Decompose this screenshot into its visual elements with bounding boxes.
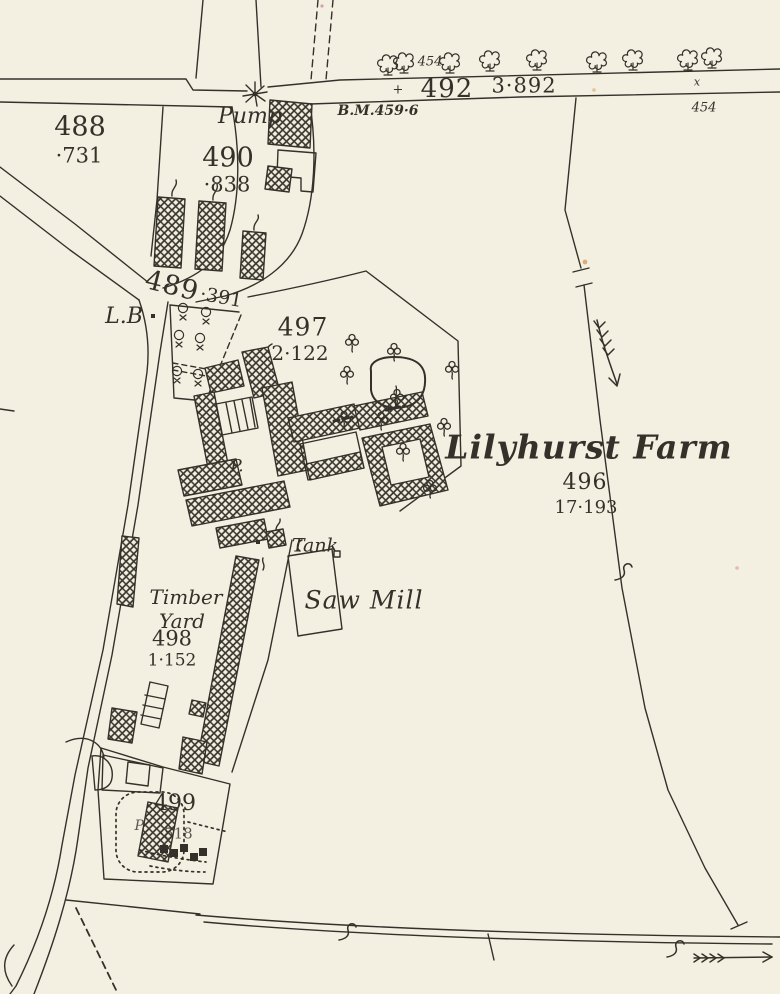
fruit-tree-icon <box>193 369 202 386</box>
tree-icon <box>587 52 607 72</box>
fruit-tree-icon <box>195 333 204 350</box>
parcel-498-area: 1·152 <box>148 653 197 670</box>
tree-icon <box>702 48 722 68</box>
guide-post-icon <box>243 82 267 106</box>
map-linework <box>0 0 780 994</box>
parcel-490-number: 490 <box>202 145 254 172</box>
letter-box-label: L.B <box>105 306 143 328</box>
parcel-496-number: 496 <box>563 472 608 494</box>
bench-mark-label: B.M.459·6 <box>338 104 419 118</box>
parcel-499-number: 499 <box>154 793 196 815</box>
parcel-488-area: ·731 <box>56 146 103 167</box>
parcel-492-number: 492 <box>421 76 474 102</box>
spot-height-454-west: 454 <box>418 56 443 69</box>
shrub-icon <box>388 344 401 362</box>
shrub-icon <box>346 335 359 353</box>
farm-name-label: Lilyhurst Farm <box>445 431 732 464</box>
tree-icon <box>623 50 643 70</box>
bench-mark-cross: + <box>393 84 404 97</box>
parcel-499-area: ·518 <box>159 827 192 842</box>
timber-yard-label-line1: Timber <box>150 587 223 607</box>
parcel-488-number: 488 <box>54 114 106 141</box>
fruit-tree-icon <box>201 307 210 324</box>
spot-height-454-east: 454 <box>692 102 717 115</box>
parcel-497-area: 2·122 <box>271 343 328 363</box>
parcel-498-number: 498 <box>152 629 192 650</box>
shrub-icon <box>446 362 459 380</box>
flow-arrow-icon <box>594 320 620 386</box>
saw-mill-label: Saw Mill <box>305 588 424 613</box>
north-track <box>196 0 333 87</box>
field-boundaries <box>0 98 780 994</box>
shrub-icon <box>341 367 354 385</box>
tree-icon <box>527 50 547 70</box>
tree-icon <box>378 55 398 75</box>
flow-arrow-right-icon <box>694 952 772 962</box>
pump-abbrev-label: P. <box>230 459 243 476</box>
tank-label: Tank <box>292 537 338 556</box>
parcel-496-area: 17·193 <box>555 499 618 517</box>
parcel-492-area: 3·892 <box>491 76 556 97</box>
gate-mark: x <box>694 77 700 88</box>
fruit-tree-icon <box>174 330 183 347</box>
parcel-497-number: 497 <box>278 315 329 340</box>
tree-icon <box>480 51 500 71</box>
ordnance-survey-map: 488 ·731 490 ·838 Pump 454 + 492 3·892 B… <box>0 0 780 994</box>
farm-buildings <box>178 347 448 548</box>
parcel-490-area: ·838 <box>204 175 251 196</box>
pump-label: Pump <box>218 106 282 128</box>
tree-icon <box>678 50 698 70</box>
pump-abbrev-label-2: P. <box>134 819 145 833</box>
